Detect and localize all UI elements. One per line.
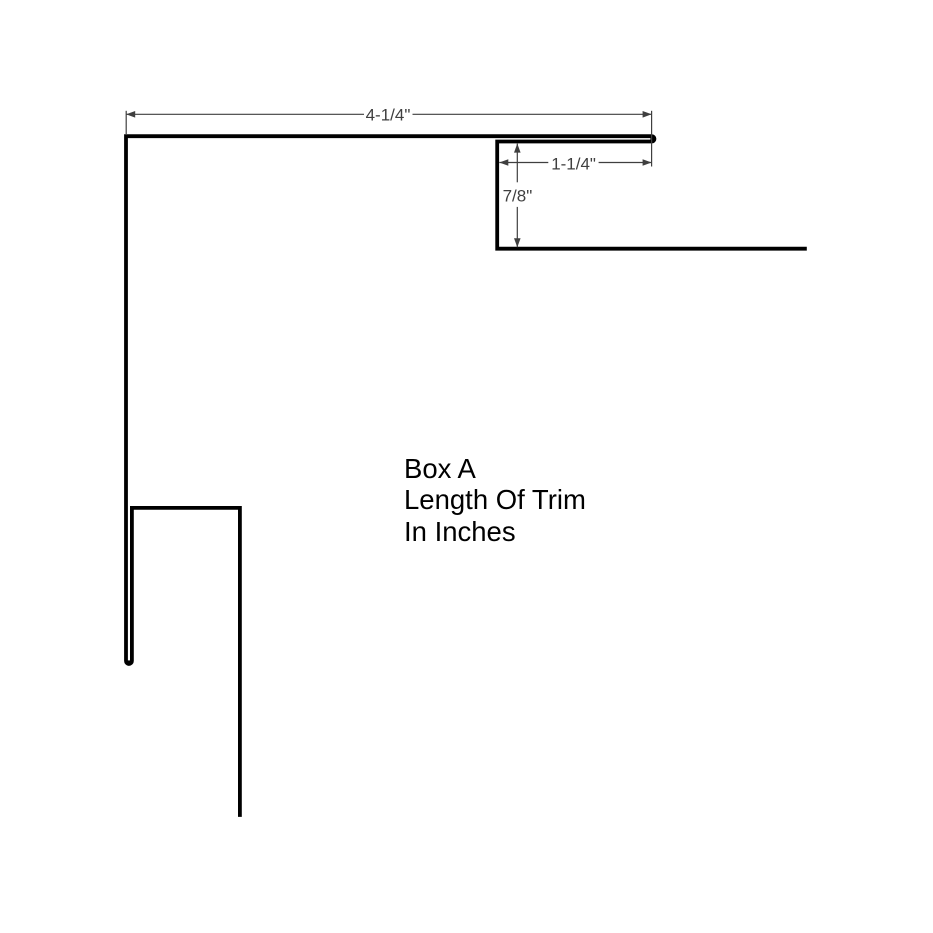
- svg-text:Length Of Trim: Length Of Trim: [404, 484, 586, 515]
- svg-text:In Inches: In Inches: [404, 516, 516, 547]
- svg-text:4-1/4": 4-1/4": [366, 106, 411, 125]
- svg-text:7/8": 7/8": [503, 187, 533, 206]
- svg-text:Box A: Box A: [404, 453, 477, 484]
- svg-text:1-1/4": 1-1/4": [551, 155, 596, 174]
